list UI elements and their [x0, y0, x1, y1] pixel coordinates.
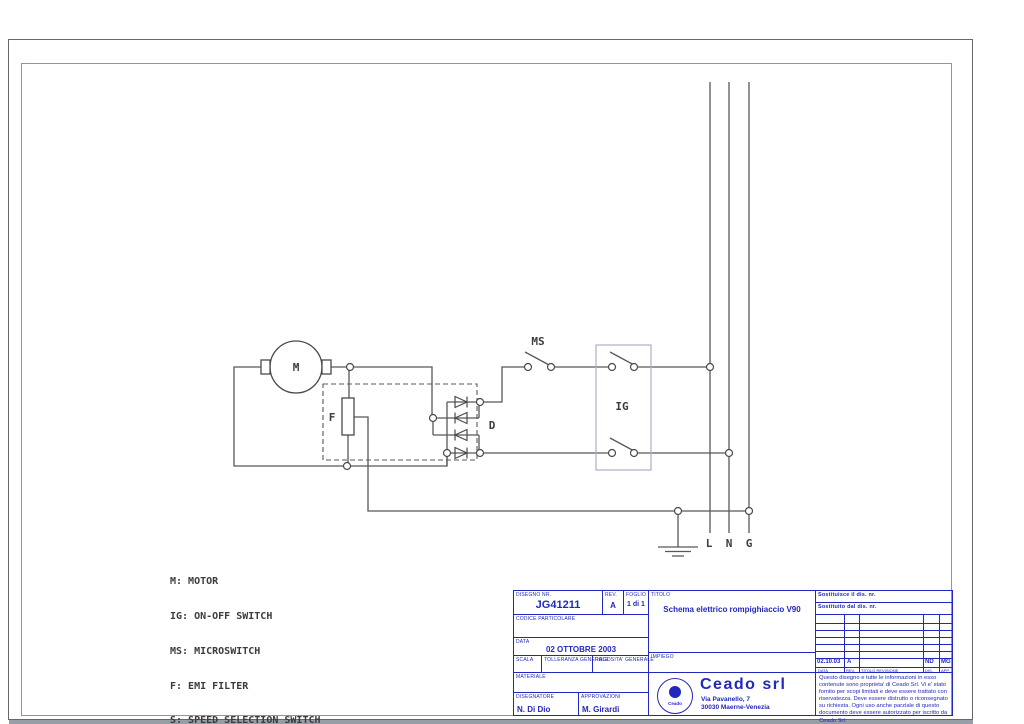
- drafter-cell: DISEGNATORE N. Di Dio: [513, 692, 579, 716]
- sheet-label: FOGLIO: [626, 592, 646, 598]
- drawing-page: M F D MS IG L N G M: MOTOR IG: ON-OFF SW…: [0, 0, 1024, 724]
- legend-line: MS: MICROSWITCH: [170, 646, 500, 658]
- disclaimer-text: Questo disegno e tutte le informazioni i…: [816, 673, 952, 724]
- tolerance-cell: TOLLERANZA GENERALE: [541, 655, 593, 673]
- revision-table: 02.10.03 A ND MG DATA REV. TITOLO REVISI…: [815, 614, 953, 673]
- drawing-number-cell: DISEGNO NR. JG41211: [513, 590, 603, 615]
- legend-line: IG: ON-OFF SWITCH: [170, 611, 500, 623]
- bridge-label: D: [489, 419, 496, 432]
- title-label: TITOLO: [651, 592, 670, 598]
- ground-label: G: [746, 537, 753, 550]
- company-address2: 30030 Maerne-Venezia: [701, 704, 770, 711]
- filter-label: F: [329, 411, 336, 424]
- scale-label: SCALA: [516, 657, 533, 663]
- line-label: L: [706, 537, 713, 550]
- bridge-to-ms-wire: [480, 367, 528, 402]
- use-label: IMPIEGO: [651, 654, 674, 660]
- drawing-number-value: JG41211: [514, 599, 602, 611]
- company-address1: Via Pavanello, 7: [701, 696, 750, 703]
- disclaimer-cell: Questo disegno e tutte le informazioni i…: [815, 672, 953, 716]
- ceado-logo-icon: Ceado: [657, 678, 693, 714]
- motor-brush-left: [261, 360, 270, 374]
- emi-filter-symbol: [342, 398, 354, 435]
- scale-cell: SCALA: [513, 655, 542, 673]
- filter-ground-wire: [354, 417, 749, 511]
- drawing-title: Schema elettrico rompighiaccio V90: [649, 605, 815, 614]
- ground-icon: [658, 547, 698, 556]
- roughness-cell: RUGOSITA' GENERALE: [592, 655, 649, 673]
- legend-line: M: MOTOR: [170, 576, 500, 588]
- bridge-rectifier-symbol: [455, 397, 467, 459]
- revision-row-rev: A: [847, 659, 851, 665]
- ceado-logo-dot-icon: [669, 686, 681, 698]
- revision-row-dis: ND: [925, 659, 934, 665]
- revision-label: REV.: [605, 592, 617, 598]
- onoff-switch-label: IG: [615, 400, 629, 413]
- approval-cell: APPROVAZIONI M. Girardi: [578, 692, 649, 716]
- date-cell: DATA 02 OTTOBRE 2003: [513, 637, 649, 656]
- title-block: DISEGNO NR. JG41211 REV. A FOGLIO 1 di 1…: [513, 590, 953, 716]
- motor-brush-right: [322, 360, 331, 374]
- legend-line: F: EMI FILTER: [170, 681, 500, 693]
- company-name: Ceado srl: [700, 676, 786, 694]
- roughness-label: RUGOSITA' GENERALE: [595, 657, 654, 663]
- approval-value: M. Girardi: [582, 705, 619, 714]
- drafter-value: N. Di Dio: [517, 705, 550, 714]
- drawing-number-label: DISEGNO NR.: [516, 592, 551, 598]
- date-value: 02 OTTOBRE 2003: [514, 645, 648, 654]
- use-cell: IMPIEGO: [648, 652, 816, 673]
- revision-cell: REV. A: [602, 590, 624, 615]
- legend-line: S: SPEED SELECTION SWITCH: [170, 715, 500, 724]
- microswitch-label: MS: [531, 335, 544, 348]
- supersedes-label: Sostituisce il dis. nr.: [818, 592, 876, 598]
- legend: M: MOTOR IG: ON-OFF SWITCH MS: MICROSWIT…: [170, 553, 500, 724]
- neutral-label: N: [726, 537, 733, 550]
- junction-nodes: [344, 364, 753, 515]
- sheet-value: 1 di 1: [624, 601, 648, 608]
- motor-return-wire: [234, 367, 447, 466]
- motor-label: M: [293, 361, 300, 374]
- part-code-cell: CODICE PARTICOLARE: [513, 614, 649, 638]
- material-label: MATERIALE: [516, 674, 546, 680]
- approval-label: APPROVAZIONI: [581, 694, 621, 700]
- title-cell: TITOLO Schema elettrico rompighiaccio V9…: [648, 590, 816, 653]
- drafter-label: DISEGNATORE: [516, 694, 554, 700]
- revision-row-app: MG: [941, 659, 951, 665]
- superseded-label: Sostituito dal dis. nr.: [818, 604, 877, 610]
- revision-row-date: 02.10.03: [817, 659, 840, 665]
- company-cell: Ceado Ceado srl Via Pavanello, 7 30030 M…: [648, 672, 816, 716]
- sheet-cell: FOGLIO 1 di 1: [623, 590, 649, 615]
- material-cell: MATERIALE: [513, 672, 649, 693]
- revision-value: A: [603, 601, 623, 610]
- logo-word: Ceado: [658, 701, 692, 706]
- part-code-label: CODICE PARTICOLARE: [516, 616, 575, 622]
